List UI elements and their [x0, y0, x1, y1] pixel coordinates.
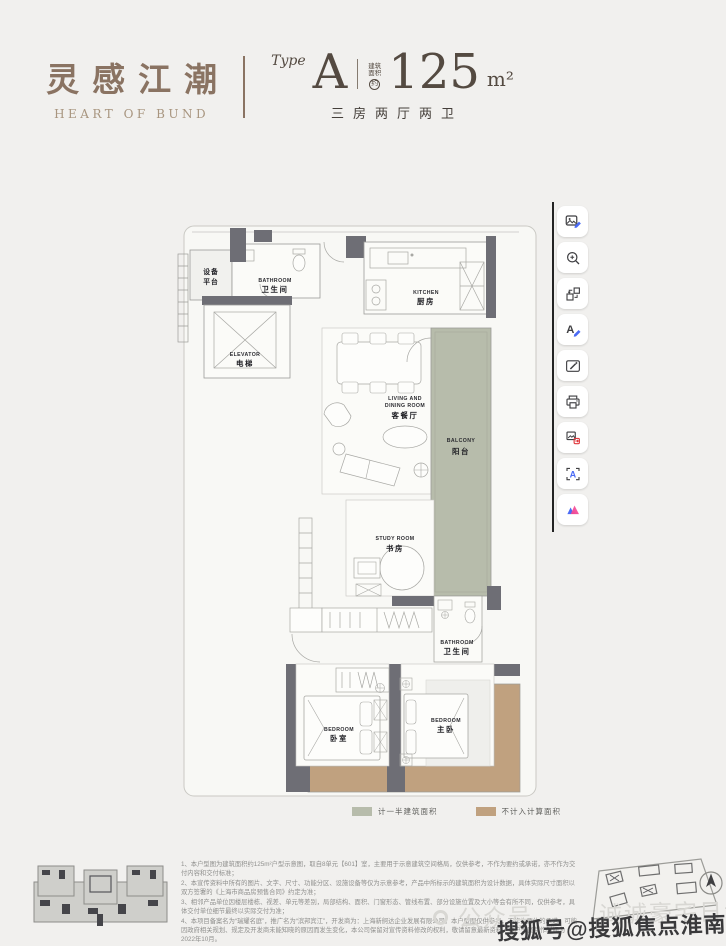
svg-text:BEDROOM: BEDROOM	[324, 727, 354, 733]
type-value: A	[313, 52, 348, 93]
legend-half-label: 计一半建筑面积	[378, 806, 438, 817]
print-icon	[564, 393, 582, 411]
edit-image-button[interactable]	[557, 206, 588, 237]
wall-block	[346, 236, 366, 258]
type-area-divider	[357, 59, 358, 89]
type-label: Type	[271, 53, 306, 69]
wall-block	[286, 766, 310, 792]
legend-excluded-swatch	[476, 807, 496, 816]
svg-text:STUDY ROOM: STUDY ROOM	[375, 536, 414, 542]
room-bathroom-mid: BATHROOM 卫生间	[434, 596, 482, 662]
approx-badge: 约	[369, 79, 380, 90]
ocr-text-icon: A	[564, 465, 582, 483]
wall-block	[389, 664, 401, 772]
header-divider	[243, 56, 245, 118]
room-bedroom: BEDROOM 卧室	[296, 664, 389, 766]
swap-position-icon	[564, 285, 582, 303]
svg-text:卫生间: 卫生间	[262, 285, 289, 294]
svg-text:BATHROOM: BATHROOM	[258, 278, 291, 284]
app-logo-icon	[564, 501, 582, 519]
wall-block	[286, 664, 296, 772]
brand-block: 灵感江潮 HEART OF BUND	[46, 53, 217, 121]
area-unit: m²	[487, 67, 514, 91]
print-button[interactable]	[557, 386, 588, 417]
edit-image-icon	[564, 213, 582, 231]
room-equipment-platform: 设备 平台	[190, 250, 232, 300]
svg-text:阳台: 阳台	[452, 447, 470, 456]
note-line-1: 1、本户型图为建筑面积约125m²户型示意图，取自8单元【601】室，主要用于示…	[181, 861, 579, 879]
wall-block	[392, 596, 436, 606]
svg-text:LIVING AND: LIVING AND	[388, 396, 422, 402]
image-toolbar: A	[557, 206, 588, 525]
svg-text:KITCHEN: KITCHEN	[413, 290, 439, 296]
brand-name-en: HEART OF BUND	[46, 107, 217, 121]
svg-text:平台: 平台	[203, 277, 219, 286]
legend-excluded-label: 不计入计算面积	[502, 806, 562, 817]
corridor-wardrobe	[290, 608, 432, 632]
zoom-in-icon	[564, 249, 582, 267]
toolbar-separator	[552, 202, 554, 532]
room-kitchen: KITCHEN 厨房	[364, 242, 491, 314]
svg-text:BATHROOM: BATHROOM	[440, 640, 473, 646]
legend-half-area: 计一半建筑面积	[352, 806, 438, 817]
ocr-text-button[interactable]: A	[557, 458, 588, 489]
wall-block	[254, 230, 272, 242]
svg-text:电梯: 电梯	[236, 359, 254, 368]
legend-half-swatch	[352, 807, 372, 816]
svg-text:ELEVATOR: ELEVATOR	[230, 352, 261, 358]
wall-block	[387, 766, 405, 792]
area-prefix-line2: 面积	[368, 70, 381, 77]
legend-excluded-area: 不计入计算面积	[476, 806, 562, 817]
edit-text-button[interactable]: A	[557, 314, 588, 345]
room-elevator: ELEVATOR 电梯	[202, 296, 292, 378]
legend: 计一半建筑面积 不计入计算面积	[352, 806, 561, 817]
brand-name-cn: 灵感江潮	[46, 53, 230, 101]
room-master-bedroom: BEDROOM 主卧	[400, 664, 494, 766]
svg-text:书房: 书房	[386, 544, 404, 553]
smart-select-icon	[564, 357, 582, 375]
wall-block	[487, 586, 501, 610]
type-block: Type A 建筑 面积 约 125 m² 三房两厅两卫	[271, 52, 514, 122]
svg-text:DINING ROOM: DINING ROOM	[385, 403, 425, 409]
floor-key-plan	[28, 856, 173, 934]
smart-select-button[interactable]	[557, 350, 588, 381]
wall-block	[486, 236, 496, 318]
watermark-logo-ring	[433, 909, 448, 924]
floorplan: 设备 平台 BATHROOM 卫生间 ELEVATOR 电梯	[174, 202, 546, 802]
svg-text:客餐厅: 客餐厅	[391, 411, 419, 420]
convert-image-icon	[564, 429, 582, 447]
convert-image-button[interactable]	[557, 422, 588, 453]
svg-text:A: A	[566, 324, 574, 336]
note-line-2: 2、本宣传资料中所有的图片、文字、尺寸、功能分区、设施设备等仅为示意参考，产品中…	[181, 880, 579, 898]
area-value: 125	[388, 52, 480, 93]
svg-text:卫生间: 卫生间	[444, 647, 471, 656]
area-note: 建筑 面积 约	[368, 63, 381, 90]
svg-text:BEDROOM: BEDROOM	[431, 718, 461, 724]
room-study: STUDY ROOM 书房	[346, 500, 434, 596]
rug	[383, 426, 427, 448]
svg-text:BALCONY: BALCONY	[447, 438, 476, 444]
svg-text:A: A	[569, 469, 576, 479]
screenshot-root: 灵感江潮 HEART OF BUND Type A 建筑 面积 约 125 m²…	[0, 0, 726, 946]
room-living-dining: LIVING AND DINING ROOM 客餐厅	[322, 328, 431, 494]
zoom-in-button[interactable]	[557, 242, 588, 273]
plan-header: 灵感江潮 HEART OF BUND Type A 建筑 面积 约 125 m²…	[0, 52, 560, 122]
swap-position-button[interactable]	[557, 278, 588, 309]
wall-block	[494, 664, 520, 676]
wall-block	[230, 228, 246, 262]
svg-text:厨房: 厨房	[417, 297, 435, 306]
app-logo-button[interactable]	[557, 494, 588, 525]
svg-text:主卧: 主卧	[437, 725, 455, 734]
edit-text-icon: A	[564, 321, 582, 339]
svg-text:设备: 设备	[203, 267, 219, 276]
svg-text:卧室: 卧室	[330, 734, 348, 743]
layout-description: 三房两厅两卫	[271, 103, 523, 122]
